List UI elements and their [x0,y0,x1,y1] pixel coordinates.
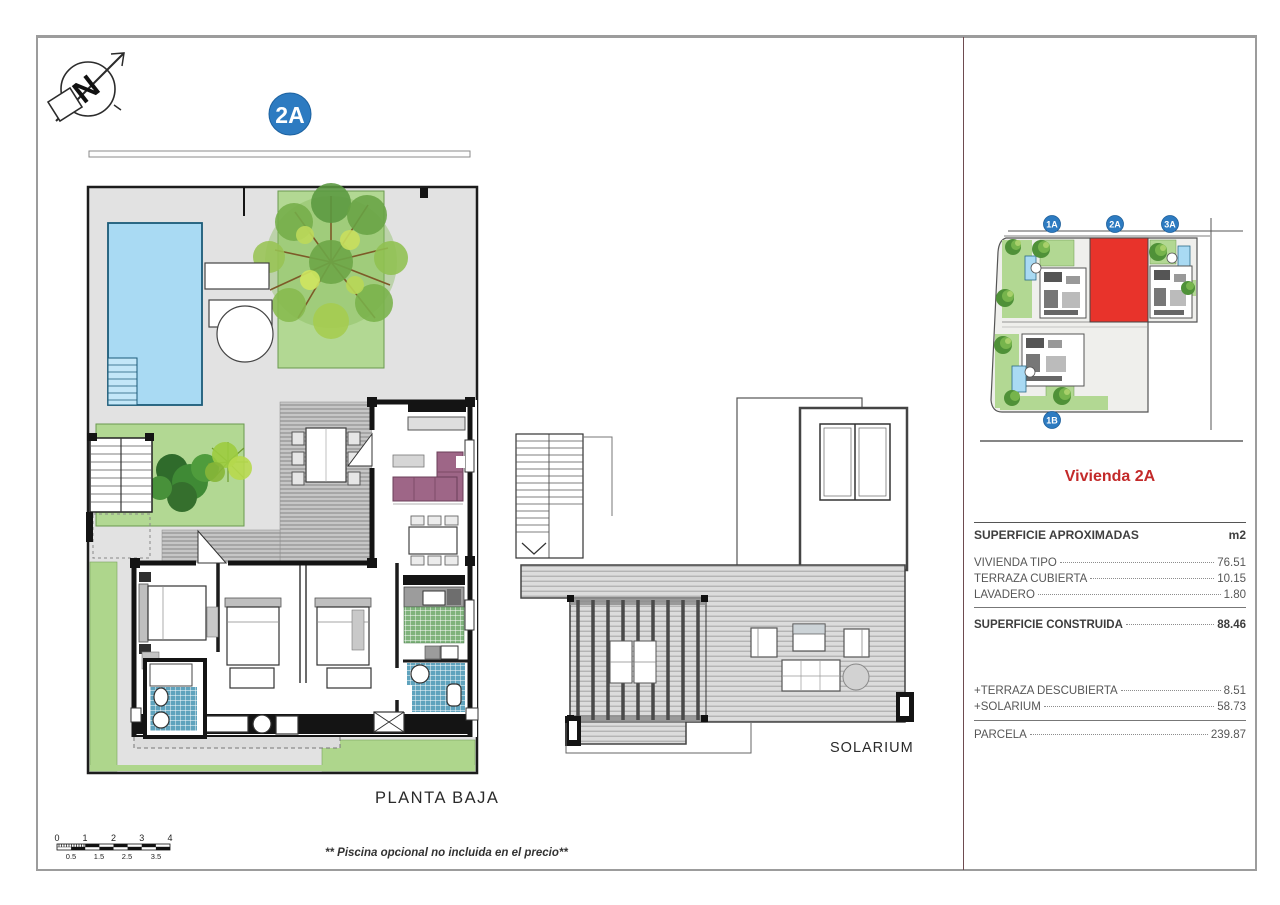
site-badge-1a: 1A [1044,216,1061,233]
svg-text:3: 3 [139,833,144,843]
site-plan: 1A 2A 3A 1B [980,216,1243,442]
svg-text:4: 4 [167,833,172,843]
dotted-leader [1038,594,1221,595]
swimming-pool [108,223,202,405]
site-villa-3a [1149,240,1196,318]
unit-badge-label: 2A [275,102,304,128]
surface-data-panel: Vivienda 2A SUPERFICIE APROXIMADAS m2 VI… [974,468,1246,744]
solarium-stairs [516,434,612,558]
plan-drawing: N 2A [0,0,1280,905]
surface-row-lavadero: LAVADERO 1.80 [974,588,1246,604]
north-compass-icon: N [48,53,124,121]
surface-table-header: SUPERFICIE APROXIMADAS m2 [974,523,1246,542]
dotted-leader [1090,578,1214,579]
surface-row-solarium: +SOLARIUM 58.73 [974,700,1246,716]
dotted-leader [1060,562,1214,563]
header-label: SUPERFICIE APROXIMADAS [974,528,1139,542]
site-villa-1a [996,239,1086,318]
dotted-leader [1030,734,1208,735]
scale-bar: 0 1 2 3 4 0.5 1.5 2.5 3.5 [54,833,172,861]
svg-text:0.5: 0.5 [66,852,76,861]
planta-baja-label: PLANTA BAJA [375,789,499,807]
bathroom-right [404,663,465,712]
dotted-leader [1126,624,1214,625]
divider-line [974,720,1246,721]
svg-text:3.5: 3.5 [151,852,161,861]
dotted-leader [1121,690,1221,691]
svg-text:1B: 1B [1046,416,1058,426]
surface-row-vivienda-tipo: VIVIENDA TIPO 76.51 [974,556,1246,572]
svg-text:1: 1 [82,833,87,843]
solarium-deck [521,565,914,746]
header-unit: m2 [1229,528,1246,542]
svg-text:2.5: 2.5 [122,852,132,861]
unit-title: Vivienda 2A [974,468,1246,486]
title-underline-bar [89,151,470,157]
site-badge-2a: 2A [1107,216,1124,233]
surface-row-terraza-descubierta: +TERRAZA DESCUBIERTA 8.51 [974,684,1246,700]
site-villa-2a-highlight [1090,238,1148,322]
svg-text:1A: 1A [1046,220,1058,230]
site-badge-3a: 3A [1162,216,1179,233]
divider-line [974,607,1246,608]
ground-floor-plan [86,183,478,773]
solarium-plan [516,398,914,753]
bathroom-left [145,660,205,737]
svg-text:3A: 3A [1164,220,1176,230]
svg-text:0: 0 [54,833,59,843]
surface-row-construida-total: SUPERFICIE CONSTRUIDA 88.46 [974,618,1246,634]
surface-row-parcela: PARCELA 239.87 [974,728,1246,744]
unit-badge: 2A [269,93,311,135]
solarium-roof-room [737,398,907,570]
solarium-label: SOLARIUM [830,740,914,756]
pool-disclaimer-footnote: ** Piscina opcional no incluida en el pr… [325,847,568,859]
svg-text:2: 2 [111,833,116,843]
svg-text:2A: 2A [1109,220,1121,230]
window-cross [374,712,404,732]
svg-text:1.5: 1.5 [94,852,104,861]
dining-table [409,516,458,565]
surface-row-terraza-cubierta: TERRAZA CUBIERTA 10.15 [974,572,1246,588]
site-badge-1b: 1B [1044,412,1061,429]
dotted-leader [1044,706,1214,707]
